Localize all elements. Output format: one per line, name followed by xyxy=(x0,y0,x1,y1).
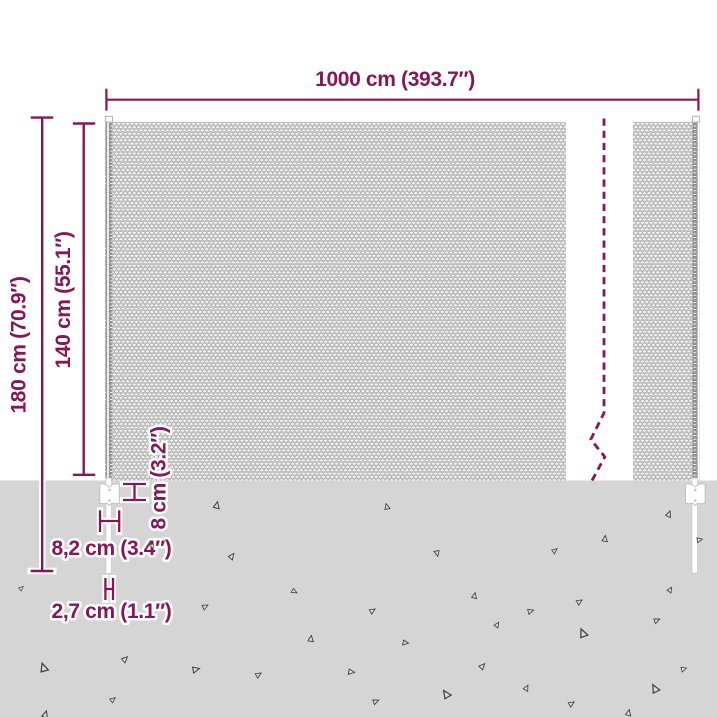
svg-text:2,7 cm (1.1″): 2,7 cm (1.1″) xyxy=(52,600,172,623)
svg-text:140 cm (55.1″): 140 cm (55.1″) xyxy=(52,231,75,368)
svg-text:1000 cm (393.7″): 1000 cm (393.7″) xyxy=(315,68,475,91)
svg-text:180 cm (70.9″): 180 cm (70.9″) xyxy=(8,276,31,413)
svg-text:8 cm (3.2″): 8 cm (3.2″) xyxy=(148,426,171,529)
